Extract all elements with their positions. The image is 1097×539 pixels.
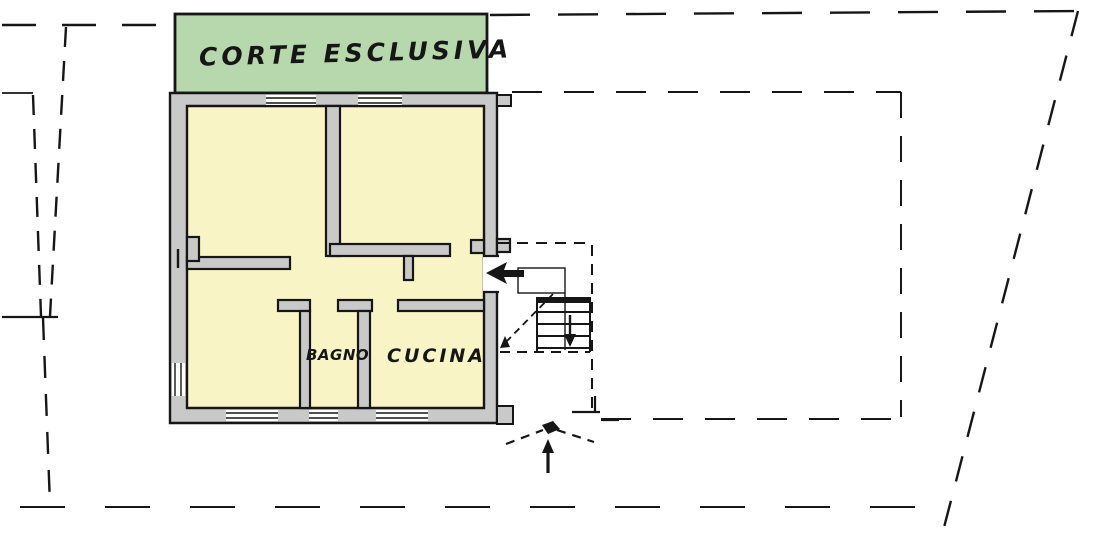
floorplan-canvas: CORTE ESCLUSIVA BAGNO CUCINA <box>0 0 1097 539</box>
wall-stub-corridor <box>404 256 413 280</box>
window-bottom-1 <box>226 410 278 421</box>
wall-hall-left-stub <box>278 300 310 311</box>
stair-top-step-bar <box>537 297 590 303</box>
wall-kitchen-top <box>398 300 484 311</box>
bathroom-label: BAGNO <box>306 346 369 364</box>
wall-under-top-left-room <box>187 257 290 269</box>
wall-under-top-right-room <box>330 244 450 256</box>
wall-bathroom-top-bar <box>338 300 372 311</box>
kitchen-label: CUCINA <box>387 345 486 367</box>
top-wall-nub <box>497 95 511 106</box>
wall-between-top-rooms <box>326 106 340 256</box>
window-left <box>172 363 185 396</box>
bottom-wall-nub <box>497 406 513 424</box>
window-top-2 <box>358 95 402 105</box>
wall-junction-stub-outer <box>497 239 510 252</box>
wall-junction-stub-inner <box>471 240 484 253</box>
window-bottom-3 <box>376 410 428 421</box>
floorplan-page: CORTE ESCLUSIVA BAGNO CUCINA <box>0 0 1097 539</box>
window-top-1 <box>266 95 316 105</box>
window-bottom-2 <box>309 410 338 421</box>
wall-left-notch <box>187 237 199 261</box>
